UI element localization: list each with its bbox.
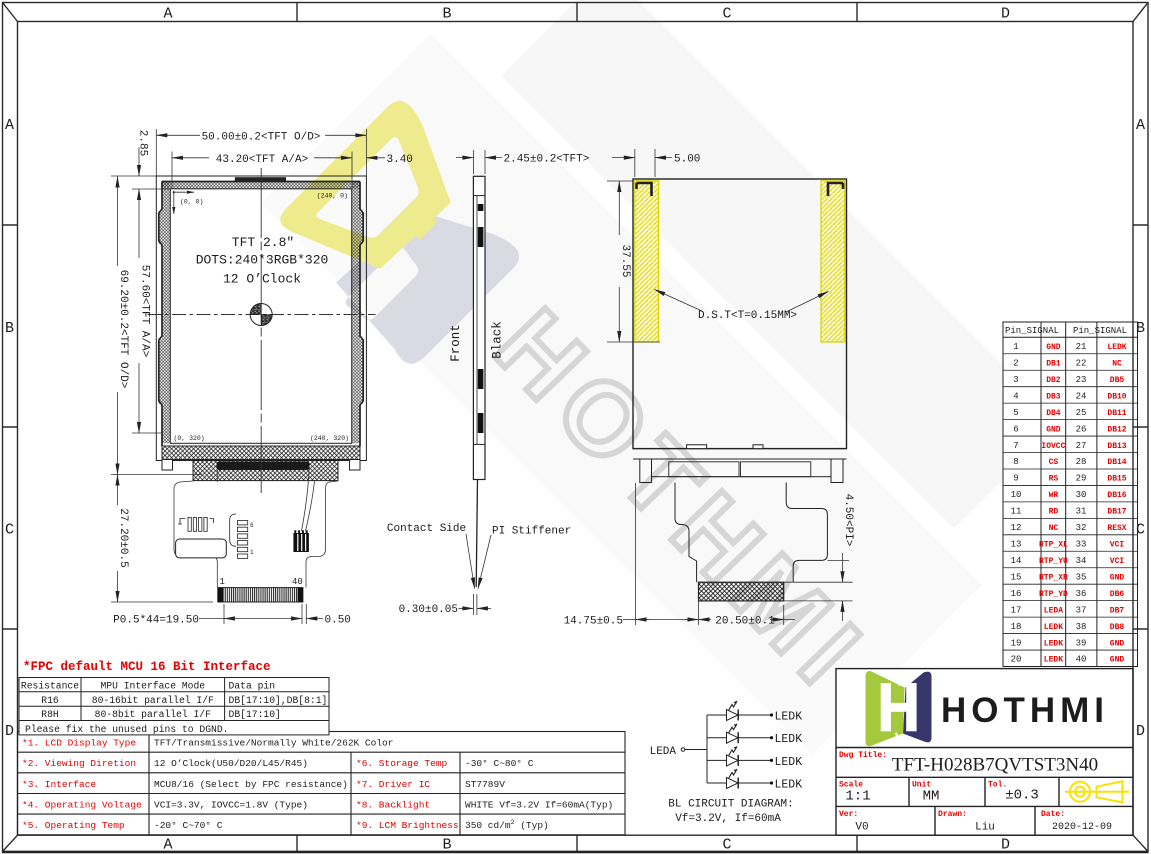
svg-text:2.85: 2.85 — [137, 130, 149, 156]
svg-text:80-16bit parallel I/F: 80-16bit parallel I/F — [92, 695, 214, 706]
svg-text:43.20<TFT A/A>: 43.20<TFT A/A> — [216, 154, 308, 166]
svg-text:37.55: 37.55 — [619, 244, 631, 277]
svg-text:V0: V0 — [855, 822, 868, 834]
svg-text:(240, 320): (240, 320) — [310, 435, 349, 442]
svg-text:Dwg Title:: Dwg Title: — [839, 751, 887, 760]
svg-text:Front: Front — [449, 324, 463, 362]
svg-text:5.00: 5.00 — [674, 154, 700, 166]
svg-text:Resistance: Resistance — [21, 681, 79, 692]
svg-text:50.00±0.2<TFT O/D>: 50.00±0.2<TFT O/D> — [202, 131, 321, 143]
svg-text:LEDA: LEDA — [650, 746, 677, 758]
svg-text:DB[17:10]: DB[17:10] — [229, 709, 281, 720]
svg-text:69.20±0.2<TFT O/D>: 69.20±0.2<TFT O/D> — [117, 270, 129, 389]
svg-text:(0, 0): (0, 0) — [180, 199, 203, 206]
svg-text:*4. Operating Voltage: *4. Operating Voltage — [22, 800, 142, 811]
svg-text:HOTHMI: HOTHMI — [941, 691, 1109, 730]
svg-text:2020-12-09: 2020-12-09 — [1052, 822, 1112, 833]
svg-text:Data pin: Data pin — [229, 681, 276, 692]
svg-text:3.40: 3.40 — [387, 154, 413, 166]
svg-text:P0.5*44=19.50: P0.5*44=19.50 — [113, 615, 199, 627]
svg-text:80-8bit parallel I/F: 80-8bit parallel I/F — [95, 709, 211, 720]
svg-text:ST7789V: ST7789V — [465, 779, 505, 790]
svg-text:A: A — [163, 6, 172, 23]
svg-text:27.20±0.5: 27.20±0.5 — [117, 508, 129, 567]
svg-text:Black: Black — [491, 321, 505, 359]
svg-text:R8H: R8H — [41, 709, 59, 720]
svg-text:Pin_SIGNAL: Pin_SIGNAL — [1005, 326, 1059, 336]
svg-text:DOTS:240*3RGB*320: DOTS:240*3RGB*320 — [196, 253, 329, 268]
svg-text:*8. Backlight: *8. Backlight — [356, 800, 430, 811]
svg-text:12 O’Clock: 12 O’Clock — [223, 272, 301, 287]
svg-text:1: 1 — [220, 577, 225, 587]
svg-text:12 O’Clock(U50/D20/L45/R45): 12 O’Clock(U50/D20/L45/R45) — [154, 758, 308, 769]
svg-text:LEDK: LEDK — [775, 779, 803, 792]
svg-text:1:1: 1:1 — [845, 789, 870, 805]
svg-text:Drawn:: Drawn: — [938, 810, 967, 819]
svg-text:Pin_SIGNAL: Pin_SIGNAL — [1073, 326, 1127, 336]
svg-text:R16: R16 — [41, 695, 59, 706]
svg-text:4.50<PI>: 4.50<PI> — [842, 494, 854, 547]
svg-text:A: A — [1136, 117, 1145, 134]
svg-text:LEDK: LEDK — [775, 756, 803, 769]
svg-text:350 cd/m2 (Typ): 350 cd/m2 (Typ) — [465, 819, 549, 831]
svg-text:-20° C~70° C: -20° C~70° C — [154, 820, 223, 831]
svg-text:TFT-H028B7QVTST3N40: TFT-H028B7QVTST3N40 — [892, 755, 1098, 776]
svg-text:LEDK: LEDK — [775, 711, 803, 724]
svg-text:Please fix the unused pins to: Please fix the unused pins to DGND. — [25, 724, 228, 735]
svg-text:-30° C~80° C: -30° C~80° C — [465, 758, 534, 769]
svg-text:Ver:: Ver: — [839, 810, 858, 819]
svg-text:D: D — [1136, 723, 1145, 740]
svg-text:Contact Side: Contact Side — [387, 523, 466, 535]
svg-text:B: B — [442, 837, 451, 854]
svg-text:40: 40 — [292, 577, 303, 587]
svg-text:*3. Interface: *3. Interface — [22, 779, 96, 790]
svg-text:C: C — [722, 837, 731, 854]
svg-text:D.S.T<T=0.15MM>: D.S.T<T=0.15MM> — [698, 310, 797, 322]
svg-text:*6. Storage Temp: *6. Storage Temp — [356, 758, 448, 769]
svg-text:LEDK: LEDK — [775, 733, 803, 746]
svg-text:Vf=3.2V, If=60mA: Vf=3.2V, If=60mA — [675, 813, 781, 825]
svg-text:14.75±0.5: 14.75±0.5 — [564, 616, 623, 628]
svg-text:*FPC default MCU 16 Bit Interf: *FPC default MCU 16 Bit Interface — [23, 660, 271, 674]
svg-text:PI Stiffener: PI Stiffener — [492, 526, 571, 538]
svg-text:DB[17:10],DB[8:1]: DB[17:10],DB[8:1] — [229, 695, 328, 706]
svg-text:BL CIRCUIT DIAGRAM:: BL CIRCUIT DIAGRAM: — [668, 799, 793, 811]
svg-text:(240, 0): (240, 0) — [317, 193, 348, 200]
svg-text:D: D — [1001, 6, 1010, 23]
svg-text:WHITE Vf=3.2V If=60mA(Typ): WHITE Vf=3.2V If=60mA(Typ) — [465, 800, 613, 811]
svg-text:*9. LCM Brightness: *9. LCM Brightness — [356, 820, 459, 831]
svg-text:20.50±0.1: 20.50±0.1 — [715, 616, 775, 628]
svg-text:TFT/Transmissive/Normally Whit: TFT/Transmissive/Normally White/262K Col… — [154, 738, 393, 749]
svg-text:D: D — [1001, 837, 1010, 854]
svg-text:6: 6 — [250, 522, 254, 529]
svg-text:A: A — [163, 837, 172, 854]
svg-text:2.45±0.2<TFT>: 2.45±0.2<TFT> — [504, 154, 590, 166]
svg-text:A: A — [5, 117, 14, 134]
svg-text:VCI=3.3V, IOVCC=1.8V (Type): VCI=3.3V, IOVCC=1.8V (Type) — [154, 800, 308, 811]
svg-text:TFT 2.8″: TFT 2.8″ — [232, 235, 294, 250]
svg-text:(0, 320): (0, 320) — [174, 435, 205, 442]
svg-text:0.30±0.05: 0.30±0.05 — [399, 604, 458, 616]
svg-text:C: C — [5, 522, 14, 539]
svg-text:C: C — [722, 6, 731, 23]
svg-text:MPU Interface Mode: MPU Interface Mode — [100, 681, 205, 692]
svg-text:57.60<TFT A/A>: 57.60<TFT A/A> — [139, 265, 151, 357]
svg-text:1: 1 — [250, 549, 254, 556]
svg-text:0.50: 0.50 — [325, 615, 351, 627]
svg-text:D: D — [5, 723, 14, 740]
svg-text:B: B — [5, 320, 14, 337]
svg-text:B: B — [442, 6, 451, 23]
svg-text:MCU8/16 (Select by FPC resista: MCU8/16 (Select by FPC resistance) — [154, 779, 348, 790]
svg-text:*7. Driver IC: *7. Driver IC — [356, 779, 430, 790]
svg-text:Liu: Liu — [975, 822, 995, 834]
svg-text:*5. Operating Temp: *5. Operating Temp — [22, 820, 125, 831]
svg-text:*2. Viewing Diretion: *2. Viewing Diretion — [22, 758, 136, 769]
svg-text:MM: MM — [923, 789, 940, 805]
svg-text:±0.3: ±0.3 — [1005, 788, 1039, 804]
svg-text:Date:: Date: — [1041, 810, 1065, 819]
svg-text:*1. LCD Display Type: *1. LCD Display Type — [22, 738, 136, 749]
